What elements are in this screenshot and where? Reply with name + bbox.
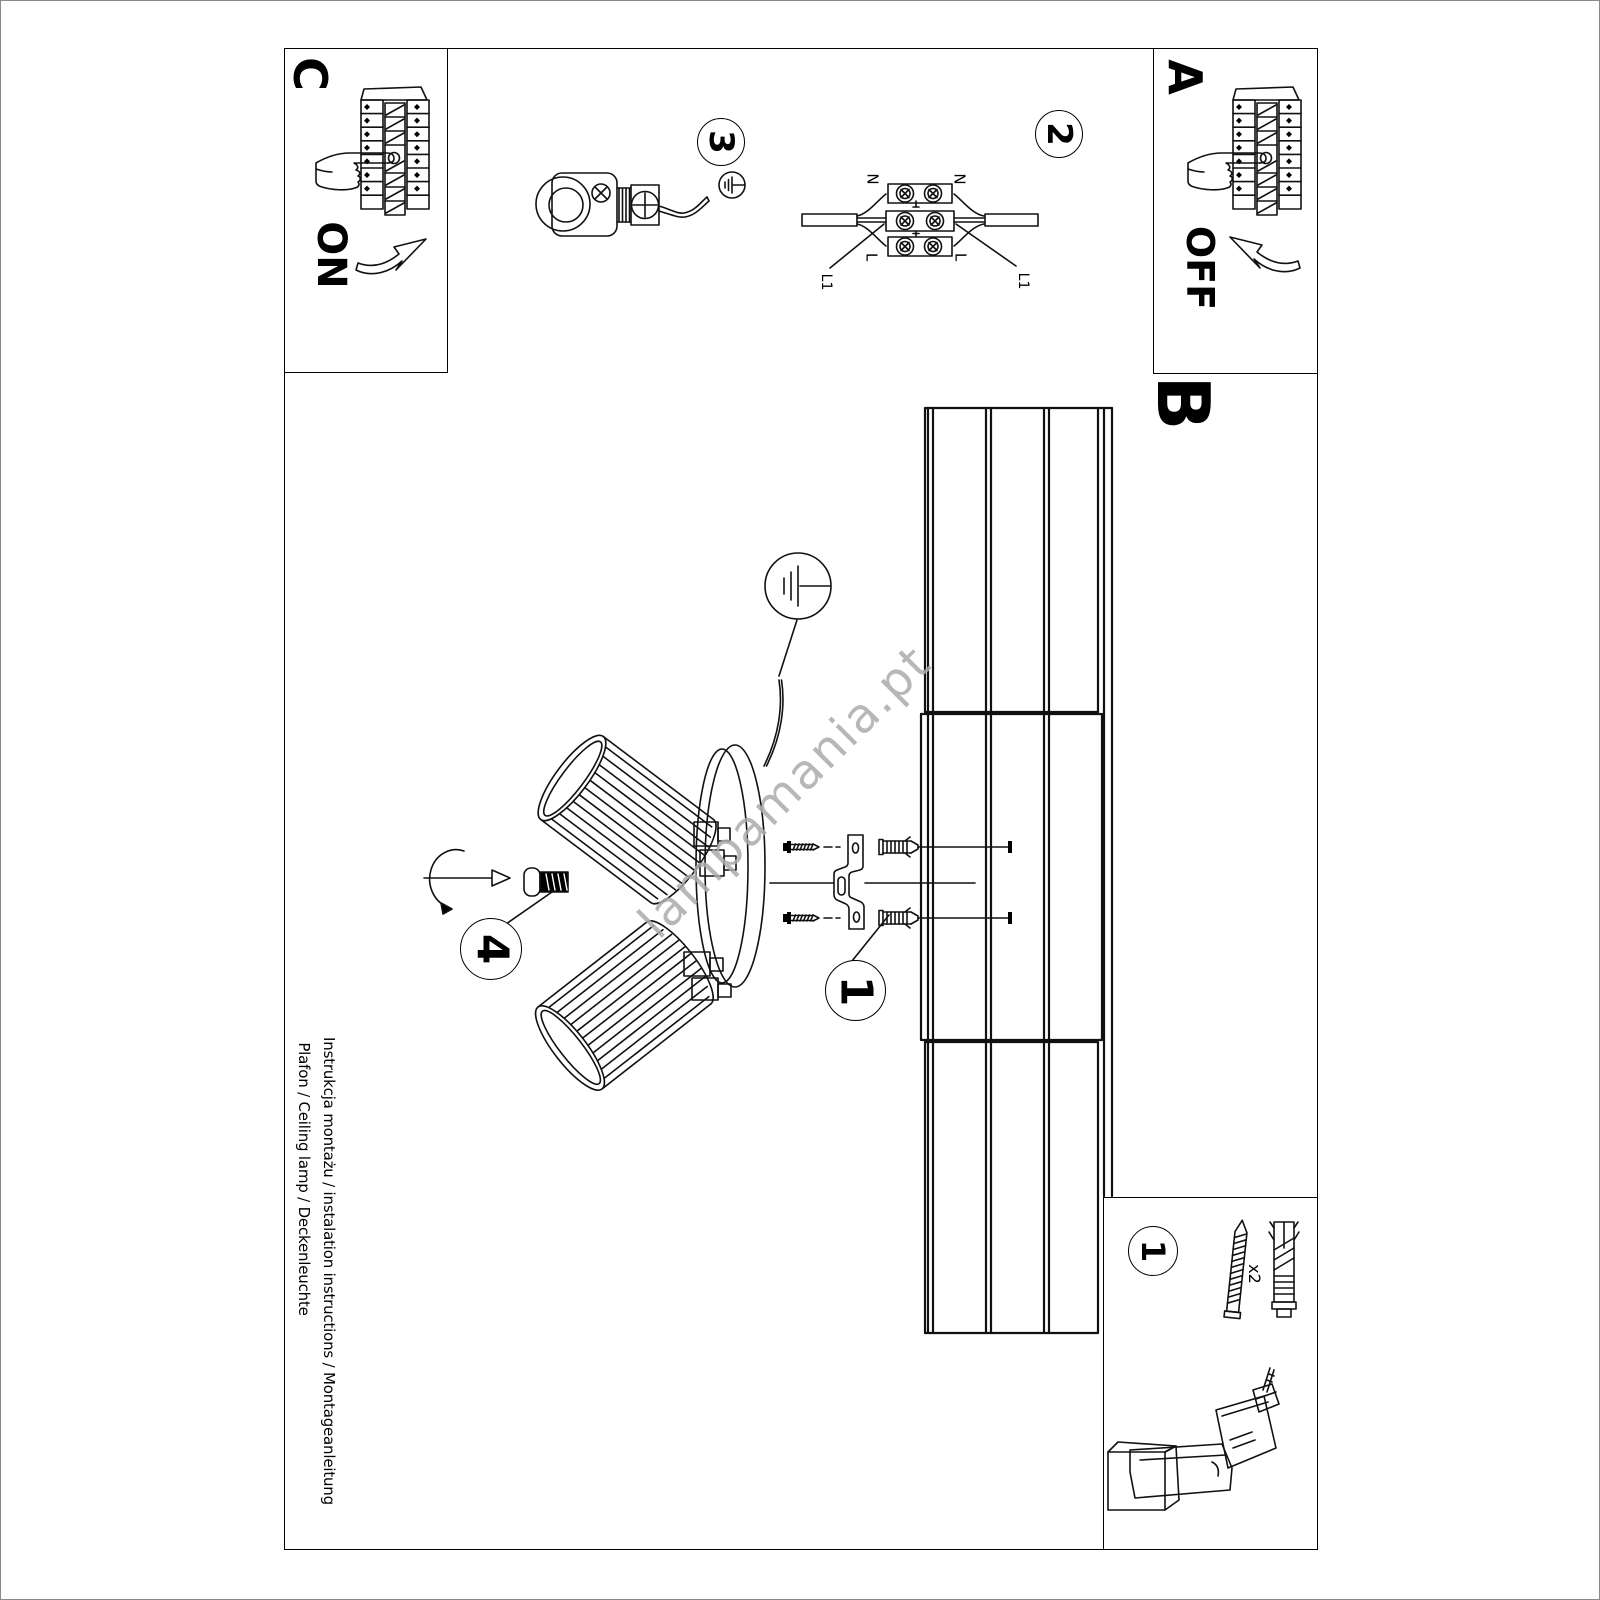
wire-l1-left-label: L1 [819, 274, 833, 291]
section-b-label: B [1147, 376, 1219, 431]
wire-l-right-label: L [953, 253, 968, 261]
step-3-badge: 3 [697, 118, 745, 166]
wire-n-left-label: N [865, 173, 880, 184]
panel-a-box [1153, 48, 1318, 374]
screw-quantity-label: x2 [1246, 1264, 1262, 1284]
wire-l-left-label: L [864, 253, 879, 261]
wire-n-right-label: N [952, 173, 967, 184]
step-1-badge: 1 [825, 960, 886, 1021]
instruction-title-line1: Instrukcja montażu / instalation instruc… [320, 1037, 338, 1505]
section-a-label: A [1162, 59, 1208, 95]
state-on-label: ON [311, 221, 351, 288]
step-2-badge: 2 [1035, 110, 1083, 158]
wire-l1-right-label: L1 [1016, 273, 1030, 290]
instruction-title-line2: Plafon / Ceiling lamp / Deckenleuchte [295, 1042, 313, 1315]
panel-c-box [284, 48, 448, 373]
section-c-label: C [287, 57, 333, 91]
state-off-label: OFF [1181, 226, 1219, 310]
parts-step-1-badge: 1 [1128, 1226, 1178, 1276]
instruction-sheet: lampamania.pt C ON A OFF B 3 2 4 1 1 N N… [0, 0, 1600, 1600]
step-4-badge: 4 [460, 918, 522, 980]
